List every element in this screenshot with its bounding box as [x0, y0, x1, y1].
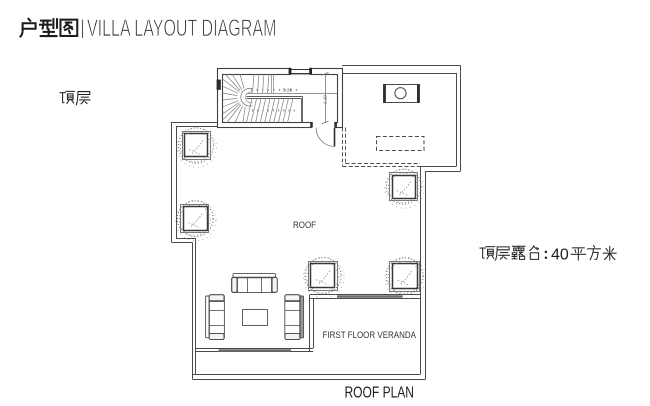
svg-text:ROOF: ROOF: [293, 220, 316, 230]
svg-text:FIRST FLOOR VERANDA: FIRST FLOOR VERANDA: [323, 330, 417, 340]
svg-text:VILLA LAYOUT DIAGRAM: VILLA LAYOUT DIAGRAM: [87, 14, 277, 42]
svg-text:ROOF PLAN: ROOF PLAN: [345, 384, 415, 401]
svg-text:5.20: 5.20: [283, 88, 292, 93]
svg-text:40: 40: [551, 247, 569, 264]
svg-text:2.10: 2.10: [322, 95, 327, 104]
